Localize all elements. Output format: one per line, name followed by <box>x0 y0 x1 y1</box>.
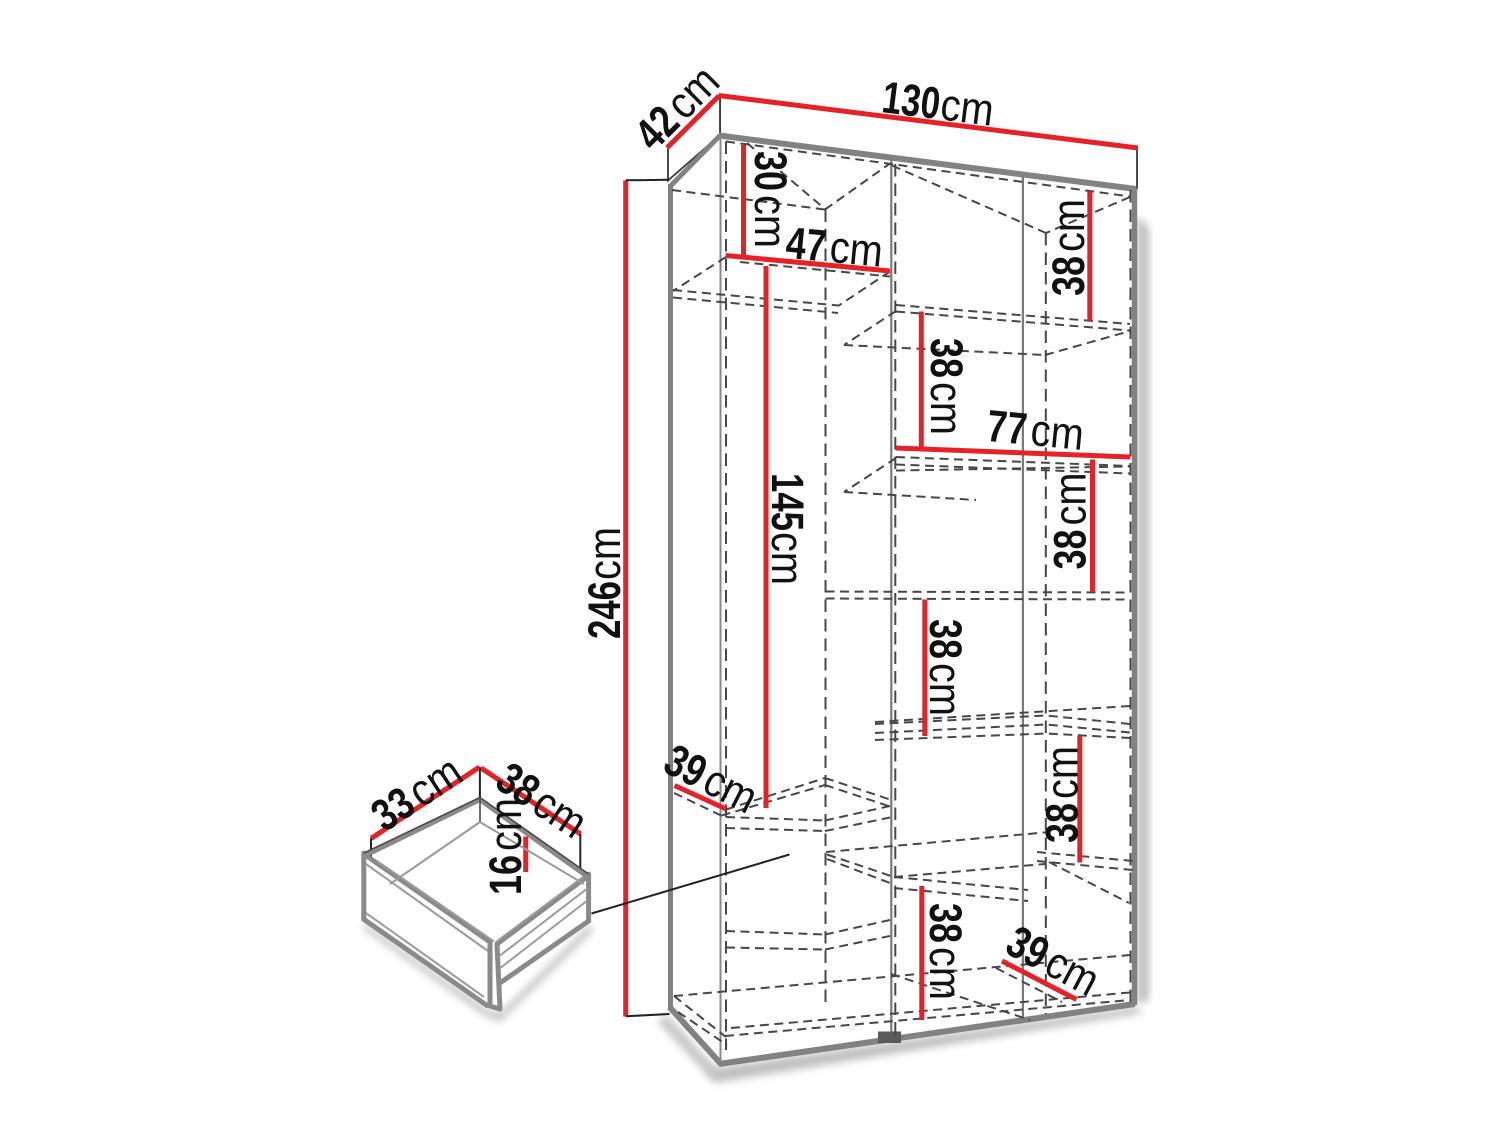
svg-text:145: 145 <box>762 473 813 531</box>
svg-text:16: 16 <box>480 855 531 895</box>
svg-text:38: 38 <box>920 903 971 943</box>
svg-text:cm: cm <box>480 798 531 851</box>
svg-text:cm: cm <box>1045 473 1096 526</box>
svg-text:246: 246 <box>579 581 630 639</box>
svg-text:47: 47 <box>784 217 829 272</box>
svg-text:38: 38 <box>1045 530 1096 570</box>
svg-text:cm: cm <box>921 382 972 435</box>
svg-text:cm: cm <box>1043 199 1094 252</box>
svg-text:cm: cm <box>920 947 971 1000</box>
svg-text:38: 38 <box>1037 803 1088 843</box>
svg-text:38: 38 <box>921 338 972 378</box>
svg-text:cm: cm <box>920 663 971 716</box>
svg-text:130: 130 <box>879 71 943 129</box>
svg-text:cm: cm <box>762 532 813 585</box>
svg-text:cm: cm <box>828 221 886 277</box>
svg-text:cm: cm <box>1037 746 1088 799</box>
svg-text:cm: cm <box>1029 404 1087 460</box>
svg-text:cm: cm <box>579 527 630 580</box>
svg-text:38: 38 <box>920 619 971 659</box>
svg-text:30: 30 <box>745 151 796 191</box>
svg-text:77: 77 <box>985 400 1030 455</box>
svg-text:38: 38 <box>1043 256 1094 296</box>
svg-text:cm: cm <box>938 79 997 136</box>
